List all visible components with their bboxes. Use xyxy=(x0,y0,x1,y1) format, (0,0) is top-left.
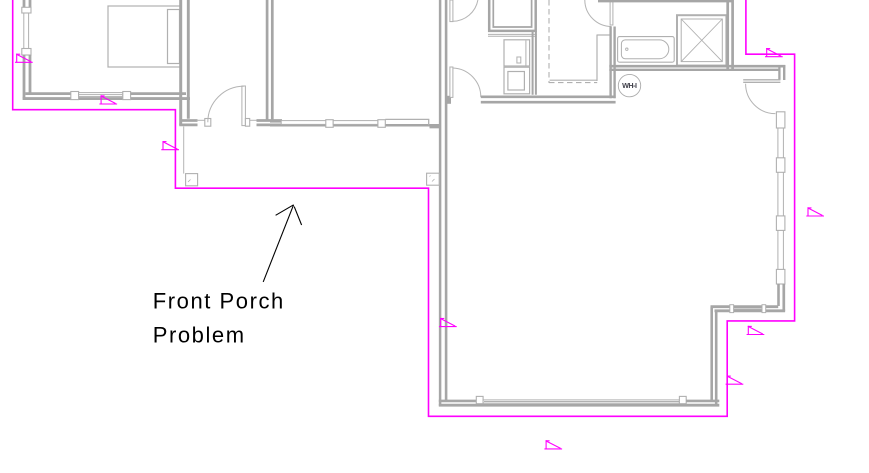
svg-text:WH-I: WH-I xyxy=(622,81,637,90)
svg-text:Problem: Problem xyxy=(153,323,246,348)
svg-text:Front Porch: Front Porch xyxy=(153,289,285,314)
